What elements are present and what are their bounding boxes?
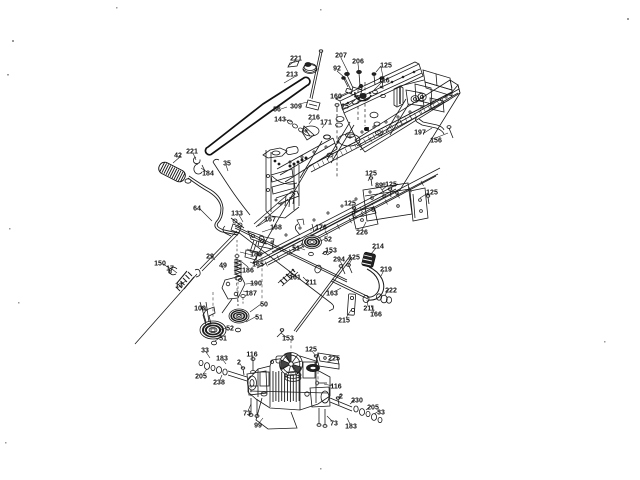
svg-text:125: 125	[365, 171, 377, 178]
svg-text:99: 99	[254, 423, 262, 430]
svg-text:183: 183	[216, 356, 228, 363]
svg-text:215: 215	[338, 318, 350, 325]
svg-text:52: 52	[324, 237, 332, 244]
svg-text:2: 2	[339, 394, 343, 401]
svg-text:73: 73	[243, 411, 251, 418]
svg-text:213: 213	[286, 72, 298, 79]
svg-text:116: 116	[378, 78, 389, 85]
svg-text:133: 133	[231, 211, 243, 218]
svg-text:230: 230	[351, 398, 363, 405]
svg-text:125: 125	[380, 63, 392, 70]
svg-text:160: 160	[330, 94, 342, 101]
svg-text:221: 221	[186, 149, 198, 156]
svg-text:161: 161	[289, 275, 301, 282]
svg-text:214: 214	[372, 244, 384, 251]
svg-text:100: 100	[194, 306, 206, 313]
svg-text:125: 125	[305, 347, 317, 354]
svg-text:73: 73	[330, 421, 338, 428]
svg-text:153: 153	[282, 336, 294, 343]
svg-text:2: 2	[237, 360, 241, 367]
svg-text:51: 51	[255, 315, 263, 322]
svg-text:33: 33	[201, 348, 209, 355]
svg-text:184: 184	[202, 171, 214, 178]
svg-text:211: 211	[305, 280, 316, 287]
svg-text:221: 221	[290, 56, 302, 63]
svg-text:89: 89	[375, 183, 383, 190]
svg-text:56: 56	[273, 107, 281, 114]
svg-text:166: 166	[370, 312, 382, 319]
svg-text:156: 156	[430, 138, 442, 145]
svg-text:33: 33	[377, 410, 385, 417]
svg-text:216: 216	[308, 115, 320, 122]
svg-text:92: 92	[333, 66, 341, 73]
svg-text:309: 309	[290, 104, 302, 111]
svg-text:50: 50	[260, 302, 268, 309]
svg-text:167: 167	[264, 217, 276, 224]
svg-text:225: 225	[328, 356, 340, 363]
svg-text:165: 165	[252, 262, 264, 269]
svg-text:205: 205	[195, 374, 207, 381]
svg-text:294: 294	[333, 257, 345, 264]
svg-text:226: 226	[356, 230, 368, 237]
svg-text:25: 25	[341, 104, 349, 111]
svg-text:35: 35	[223, 161, 231, 168]
svg-text:168: 168	[270, 225, 282, 232]
svg-text:163: 163	[326, 291, 338, 298]
svg-text:52: 52	[226, 326, 234, 333]
svg-text:51: 51	[219, 336, 227, 343]
svg-text:183: 183	[345, 424, 357, 431]
svg-text:238: 238	[213, 380, 225, 387]
svg-text:64: 64	[193, 206, 201, 213]
svg-text:219: 219	[380, 267, 392, 274]
svg-text:171: 171	[320, 120, 332, 127]
svg-text:176: 176	[315, 225, 327, 232]
svg-text:125: 125	[385, 182, 397, 189]
svg-text:116: 116	[330, 384, 341, 391]
svg-text:143: 143	[274, 117, 286, 124]
svg-text:125: 125	[344, 201, 356, 208]
svg-text:125: 125	[348, 255, 360, 262]
svg-text:51: 51	[292, 246, 300, 253]
svg-text:186: 186	[242, 268, 254, 275]
svg-text:150: 150	[154, 261, 166, 268]
svg-text:222: 222	[385, 288, 397, 295]
svg-text:190: 190	[250, 281, 262, 288]
